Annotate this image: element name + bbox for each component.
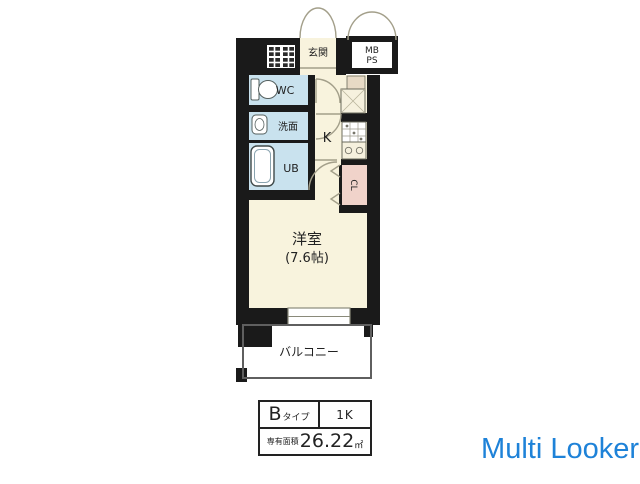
wall-wc-senmen xyxy=(249,105,308,112)
main-room-label: 洋室 xyxy=(292,230,322,248)
area-value: 26.22 xyxy=(300,432,354,451)
kitchen-stove-icon xyxy=(342,142,366,159)
ub-label: UB xyxy=(283,162,299,175)
wall-balcony-pillar xyxy=(236,368,247,382)
kitchen-label: K xyxy=(323,131,332,146)
washer-space-icon xyxy=(341,89,365,113)
senmen-label: 洗面 xyxy=(278,121,298,133)
wall-right xyxy=(367,75,380,325)
unit-info-table: B タイプ 1K 専有面積 26.22 ㎡ xyxy=(258,400,372,456)
entrance-door-left-arc xyxy=(300,8,318,38)
area-label: 専有面積 xyxy=(267,436,299,447)
wall-senmen-ub xyxy=(249,140,308,143)
window xyxy=(288,308,350,325)
wall-closet-bottom xyxy=(339,205,380,213)
grid-block xyxy=(266,44,296,69)
main-room-size-label: (7.6帖) xyxy=(285,251,329,266)
area-unit: ㎡ xyxy=(354,438,363,451)
unit-type-cell: B タイプ xyxy=(260,402,320,427)
wc-label: WC xyxy=(276,84,295,97)
unit-type-row: B タイプ 1K xyxy=(260,402,370,429)
balcony-label: バルコニー xyxy=(279,345,339,359)
entrance-door-right-arc xyxy=(318,8,336,38)
unit-layout-cell: 1K xyxy=(320,402,370,427)
wall-genkan-mbps xyxy=(336,38,346,75)
toilet-icon xyxy=(251,79,278,100)
shelf-area xyxy=(347,76,365,89)
wall-kitchen-top xyxy=(341,113,367,122)
genkan-label: 玄関 xyxy=(308,46,328,59)
bathtub-icon xyxy=(251,146,274,186)
wall-kitchen-bottom xyxy=(341,159,367,165)
unit-type-letter: B xyxy=(268,405,281,424)
ps-label: PS xyxy=(366,56,377,66)
wall-ub-room xyxy=(236,190,315,200)
mbps-door-left-arc xyxy=(348,12,372,40)
wall-bottom-right xyxy=(350,308,380,325)
wall-wet-corridor xyxy=(308,75,315,190)
multi-looker-logo: Multi Looker xyxy=(481,434,639,466)
washbasin-icon xyxy=(252,115,267,134)
mbps-door-right-arc xyxy=(372,12,396,40)
mb-label: MB xyxy=(365,46,379,56)
wall-bottom-left xyxy=(249,308,288,325)
unit-type-suffix: タイプ xyxy=(283,410,310,423)
unit-area-row: 専有面積 26.22 ㎡ xyxy=(260,429,370,454)
wall-closet-left xyxy=(339,165,342,205)
kitchen-sink-icon xyxy=(342,122,366,142)
closet-label: CL xyxy=(348,179,358,190)
